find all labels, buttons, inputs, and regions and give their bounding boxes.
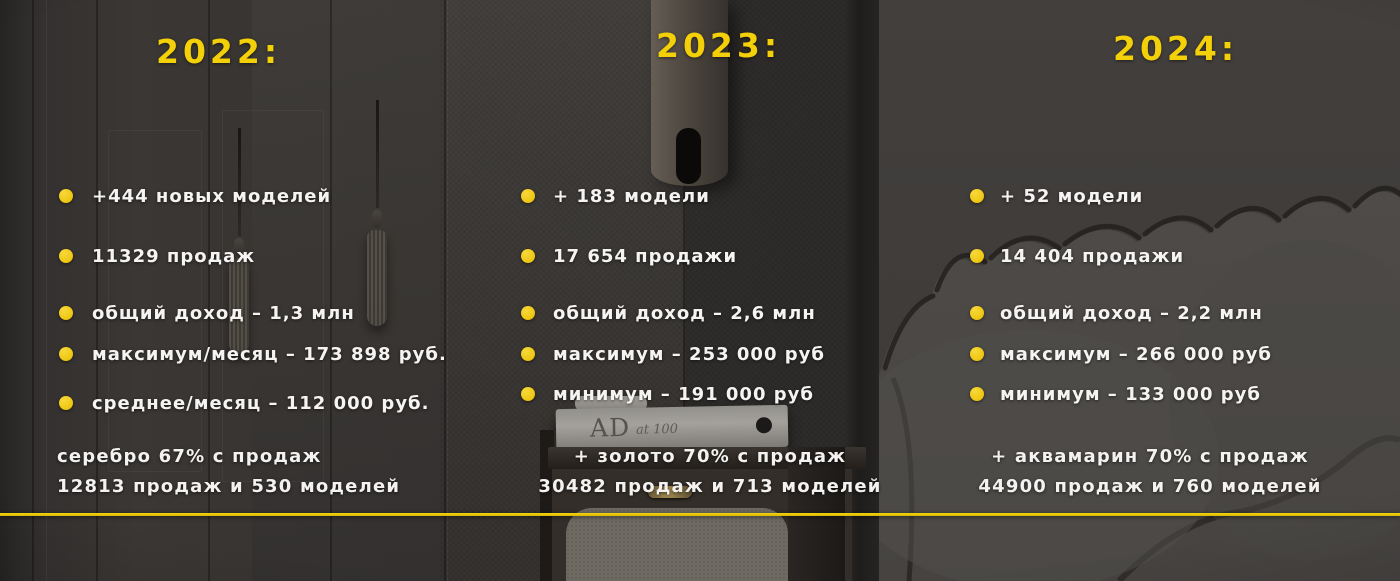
bullet-dot-icon (59, 396, 73, 410)
year-column-2022: 2022: +444 новых моделей 11329 продаж об… (40, 0, 460, 581)
stat-label: максимум – 253 000 руб (553, 344, 825, 365)
year-column-2023: 2023: + 183 модели 17 654 продажи общий … (500, 0, 920, 581)
year-heading: 2024: (1113, 29, 1238, 68)
summary-line: 30482 продаж и 713 моделей (500, 472, 920, 502)
stat-item: максимум – 266 000 руб (940, 341, 1360, 367)
stat-item: общий доход – 2,6 млн (500, 300, 920, 326)
bullet-dot-icon (59, 249, 73, 263)
summary-line: + золото 70% с продаж (500, 442, 920, 472)
stat-item: 14 404 продажи (940, 243, 1360, 269)
summary-line: 12813 продаж и 530 моделей (57, 472, 477, 502)
bullet-dot-icon (521, 387, 535, 401)
summary-line: + аквамарин 70% с продаж (940, 442, 1360, 472)
stat-label: минимум – 133 000 руб (1000, 384, 1261, 405)
stat-label: общий доход – 2,6 млн (553, 303, 816, 324)
stat-item: 17 654 продажи (500, 243, 920, 269)
stat-label: общий доход – 1,3 млн (92, 303, 355, 324)
stat-item: минимум – 191 000 руб (500, 381, 920, 407)
bullet-dot-icon (521, 189, 535, 203)
summary-line: серебро 67% с продаж (57, 442, 477, 472)
bullet-dot-icon (59, 347, 73, 361)
stat-label: общий доход – 2,2 млн (1000, 303, 1263, 324)
summary-block: + золото 70% с продаж 30482 продаж и 713… (500, 442, 920, 502)
summary-line: 44900 продаж и 760 моделей (940, 472, 1360, 502)
year-heading: 2022: (156, 32, 281, 71)
stat-item: + 183 модели (500, 183, 920, 209)
stat-item: общий доход – 2,2 млн (940, 300, 1360, 326)
stat-label: +444 новых моделей (92, 186, 331, 207)
stat-item: +444 новых моделей (40, 183, 460, 209)
bullet-dot-icon (521, 306, 535, 320)
stat-item: максимум/месяц – 173 898 руб. (40, 341, 460, 367)
stat-label: 11329 продаж (92, 246, 255, 267)
stat-label: минимум – 191 000 руб (553, 384, 814, 405)
year-column-2024: 2024: + 52 модели 14 404 продажи общий д… (940, 0, 1360, 581)
bullet-dot-icon (970, 249, 984, 263)
bullet-dot-icon (521, 347, 535, 361)
bullet-dot-icon (970, 306, 984, 320)
bullet-dot-icon (59, 189, 73, 203)
summary-block: + аквамарин 70% с продаж 44900 продаж и … (940, 442, 1360, 502)
stat-item: максимум – 253 000 руб (500, 341, 920, 367)
bullet-dot-icon (59, 306, 73, 320)
summary-block: серебро 67% с продаж 12813 продаж и 530 … (40, 442, 477, 502)
bullet-dot-icon (970, 189, 984, 203)
year-heading: 2023: (656, 26, 781, 65)
stat-label: максимум – 266 000 руб (1000, 344, 1272, 365)
bullet-dot-icon (970, 347, 984, 361)
stat-label: максимум/месяц – 173 898 руб. (92, 344, 447, 365)
stat-label: среднее/месяц – 112 000 руб. (92, 393, 429, 414)
slide: AD at 100 2022: +444 новых моделей 11329… (0, 0, 1400, 581)
stat-label: 17 654 продажи (553, 246, 737, 267)
stat-item: среднее/месяц – 112 000 руб. (40, 390, 460, 416)
bullet-dot-icon (970, 387, 984, 401)
stat-item: общий доход – 1,3 млн (40, 300, 460, 326)
stat-item: + 52 модели (940, 183, 1360, 209)
stat-item: 11329 продаж (40, 243, 460, 269)
stat-item: минимум – 133 000 руб (940, 381, 1360, 407)
stat-label: + 52 модели (1000, 186, 1143, 207)
stat-label: 14 404 продажи (1000, 246, 1184, 267)
bullet-dot-icon (521, 249, 535, 263)
stat-label: + 183 модели (553, 186, 710, 207)
